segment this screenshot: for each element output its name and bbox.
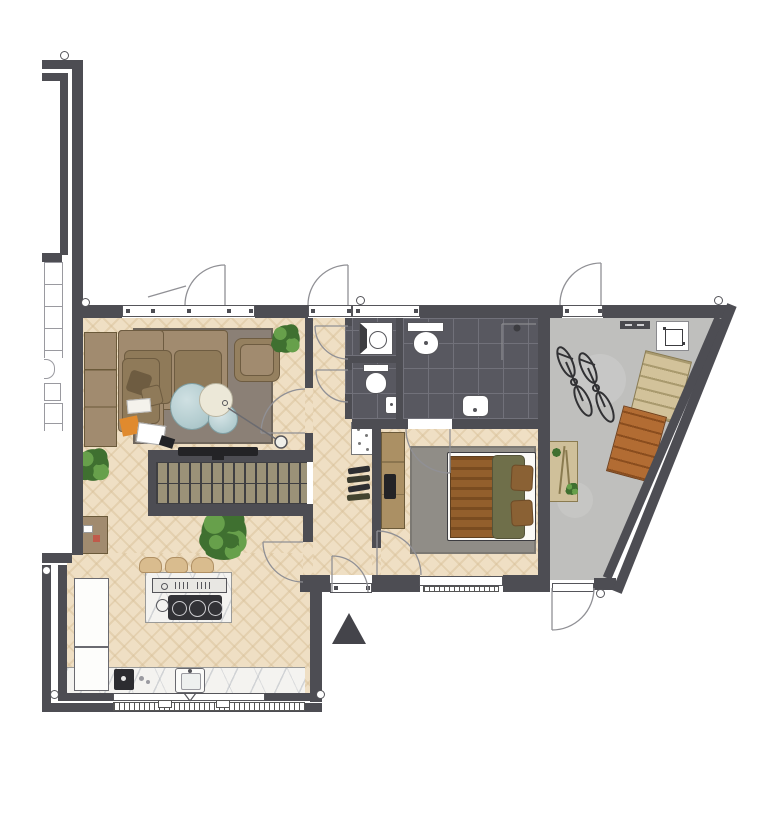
shelf-item [625, 324, 632, 326]
communal-stairs-lower [44, 403, 63, 431]
burner [172, 601, 187, 616]
wall-bath-south-r [452, 419, 538, 429]
wall-inner-left-upper [60, 81, 68, 255]
wall-left-living [72, 306, 83, 555]
wall-bedroom-east [538, 318, 550, 592]
wall-wc-bath-divider [396, 318, 403, 419]
utensil-tray [152, 578, 227, 593]
kitchen-island [145, 572, 232, 623]
door-opening-floor [372, 548, 381, 575]
wall-stair-cap [148, 450, 156, 516]
wall-kitchen-right [310, 583, 322, 702]
kitchen-plant [202, 533, 246, 560]
tall-cabinet-fridge [74, 578, 109, 647]
door-band-terrace-top [562, 305, 603, 317]
window-french-doors-living [122, 305, 255, 317]
wall-hall-bottom-l [300, 575, 330, 592]
wall-living-hall-a [305, 318, 313, 388]
shoe-row [346, 467, 374, 503]
wc-door-floor [345, 370, 352, 394]
junction-marker [81, 298, 90, 307]
bedroom-window [419, 576, 503, 586]
bed-pillow [510, 499, 533, 526]
wall-terrace-bottom-nub [594, 578, 616, 590]
shoes [348, 465, 371, 474]
door-opening-floor [303, 542, 313, 575]
washing-machine-lid [360, 323, 367, 354]
bed-pillow [510, 464, 533, 491]
bedroom-radiator [423, 586, 499, 592]
basin-drain [390, 403, 393, 406]
shoe-dot [358, 442, 361, 445]
radiator-bracket [216, 700, 230, 708]
heater-unit [656, 321, 689, 351]
wall-outer-left-upper [72, 60, 83, 306]
toilet-drain [424, 341, 428, 345]
junction-marker [42, 566, 51, 575]
junction-marker [714, 296, 723, 305]
junction-marker [316, 690, 325, 699]
junction-marker [596, 589, 605, 598]
gas-hob [168, 595, 222, 620]
heater-dot [663, 327, 666, 330]
washing-machine-door [369, 331, 387, 349]
wc-cistern [363, 364, 389, 372]
bath-bedroom-door-opening [408, 419, 452, 429]
heater-symbol [665, 329, 683, 346]
toilet-bathroom [413, 331, 439, 355]
tray-item [175, 582, 191, 589]
wall-stair-bottom [148, 504, 313, 516]
radiator-bracket [158, 700, 172, 708]
terrace-wall-shelf [620, 321, 650, 329]
door-opening-floor [305, 388, 313, 433]
laundry-door-floor [345, 326, 352, 356]
basin-drain [473, 408, 477, 412]
wall-top-c [420, 305, 562, 318]
wall-bath-south-l [352, 419, 408, 429]
junction-marker [60, 51, 69, 60]
shelf-item [637, 324, 644, 326]
burner [189, 600, 206, 617]
wall-bath-west-c [345, 394, 352, 419]
table-decor-dot [222, 400, 228, 406]
floor-plan [0, 0, 768, 818]
washing-machine [359, 322, 393, 355]
tall-cabinet-pantry [74, 647, 109, 691]
cabinet-item [93, 535, 100, 542]
potted-plant-living-corner [270, 322, 302, 356]
shoes [347, 493, 370, 501]
wall-kitchen-bottom-inner-l [58, 693, 113, 701]
tray-item [197, 582, 213, 589]
counter-item [139, 676, 144, 681]
coffee-machine-dial [121, 676, 126, 681]
shoes [347, 475, 371, 483]
wall-top-b [255, 305, 308, 318]
junction-marker [50, 690, 59, 699]
kitchen-window [113, 693, 265, 701]
wall-stub-mid [42, 253, 62, 262]
bed-blanket [450, 456, 494, 538]
kitchen-sink [175, 668, 205, 693]
terrace-door-threshold [552, 583, 594, 592]
communal-stairs [44, 262, 63, 358]
wall-inner-stub-h [42, 73, 68, 81]
coffee-machine [114, 669, 134, 690]
shoe-dot [365, 434, 368, 437]
bathroom-washbasin [462, 395, 489, 417]
concrete-mottle [574, 354, 626, 406]
terrace-small-plant [565, 482, 579, 496]
wall-kitchen-hall [303, 516, 313, 542]
tray-item [161, 583, 168, 590]
sink-basin [181, 673, 201, 690]
wall-hall-bottom-m [372, 575, 420, 592]
door-band-hall [308, 305, 352, 317]
window-laundry [352, 305, 420, 317]
kitchen-radiator [113, 702, 305, 711]
wall-top-a [83, 305, 122, 318]
counter-item [146, 680, 150, 684]
communal-landing-box [44, 383, 61, 401]
entry-door-threshold [330, 583, 372, 593]
wall-bedroom-west [372, 429, 381, 548]
junction-marker [356, 296, 365, 305]
bar-stool [139, 557, 162, 573]
wall-kitchen-inner-left [58, 565, 67, 697]
armchair-cushion [240, 344, 274, 376]
wall-top-d [603, 305, 732, 318]
island-sink-dot [156, 599, 169, 612]
toilet-wc [365, 372, 387, 394]
stair-handrail-line [156, 483, 307, 484]
cabinet-item [83, 525, 93, 533]
wall-kitchen-step [42, 553, 72, 563]
wall-bath-west-b [345, 356, 352, 370]
bar-stool [165, 557, 188, 573]
wall-bath-west-a [345, 318, 352, 326]
watering-can [551, 447, 562, 458]
burner [208, 601, 223, 616]
shoes [348, 483, 371, 492]
sideboard [84, 332, 117, 447]
round-cream-side-table [199, 383, 233, 417]
entrance-arrow [332, 613, 366, 644]
heater-dot [682, 342, 685, 345]
sink-drain [188, 669, 192, 673]
magazine [126, 398, 151, 414]
bar-stool [191, 557, 214, 573]
shoe-dot [366, 448, 369, 451]
staircase [156, 462, 307, 504]
bedroom-tv [384, 474, 396, 499]
wall-kitchen-outer-left [42, 565, 51, 712]
tv-mount [212, 455, 224, 460]
